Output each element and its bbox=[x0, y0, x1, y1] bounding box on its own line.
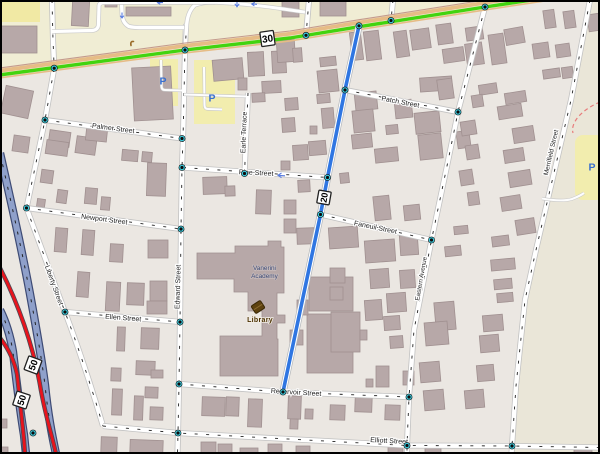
svg-text:P: P bbox=[588, 162, 595, 174]
svg-text:Library: Library bbox=[247, 317, 273, 324]
svg-text:P: P bbox=[159, 76, 166, 88]
svg-text:30: 30 bbox=[261, 33, 274, 46]
svg-text:Edward Street: Edward Street bbox=[174, 265, 182, 310]
svg-text:Earle Terrace: Earle Terrace bbox=[240, 111, 248, 153]
svg-text:P: P bbox=[208, 93, 215, 105]
svg-text:Academy: Academy bbox=[251, 273, 278, 280]
svg-text:Vanerini: Vanerini bbox=[253, 265, 276, 272]
svg-text:20: 20 bbox=[318, 192, 330, 204]
